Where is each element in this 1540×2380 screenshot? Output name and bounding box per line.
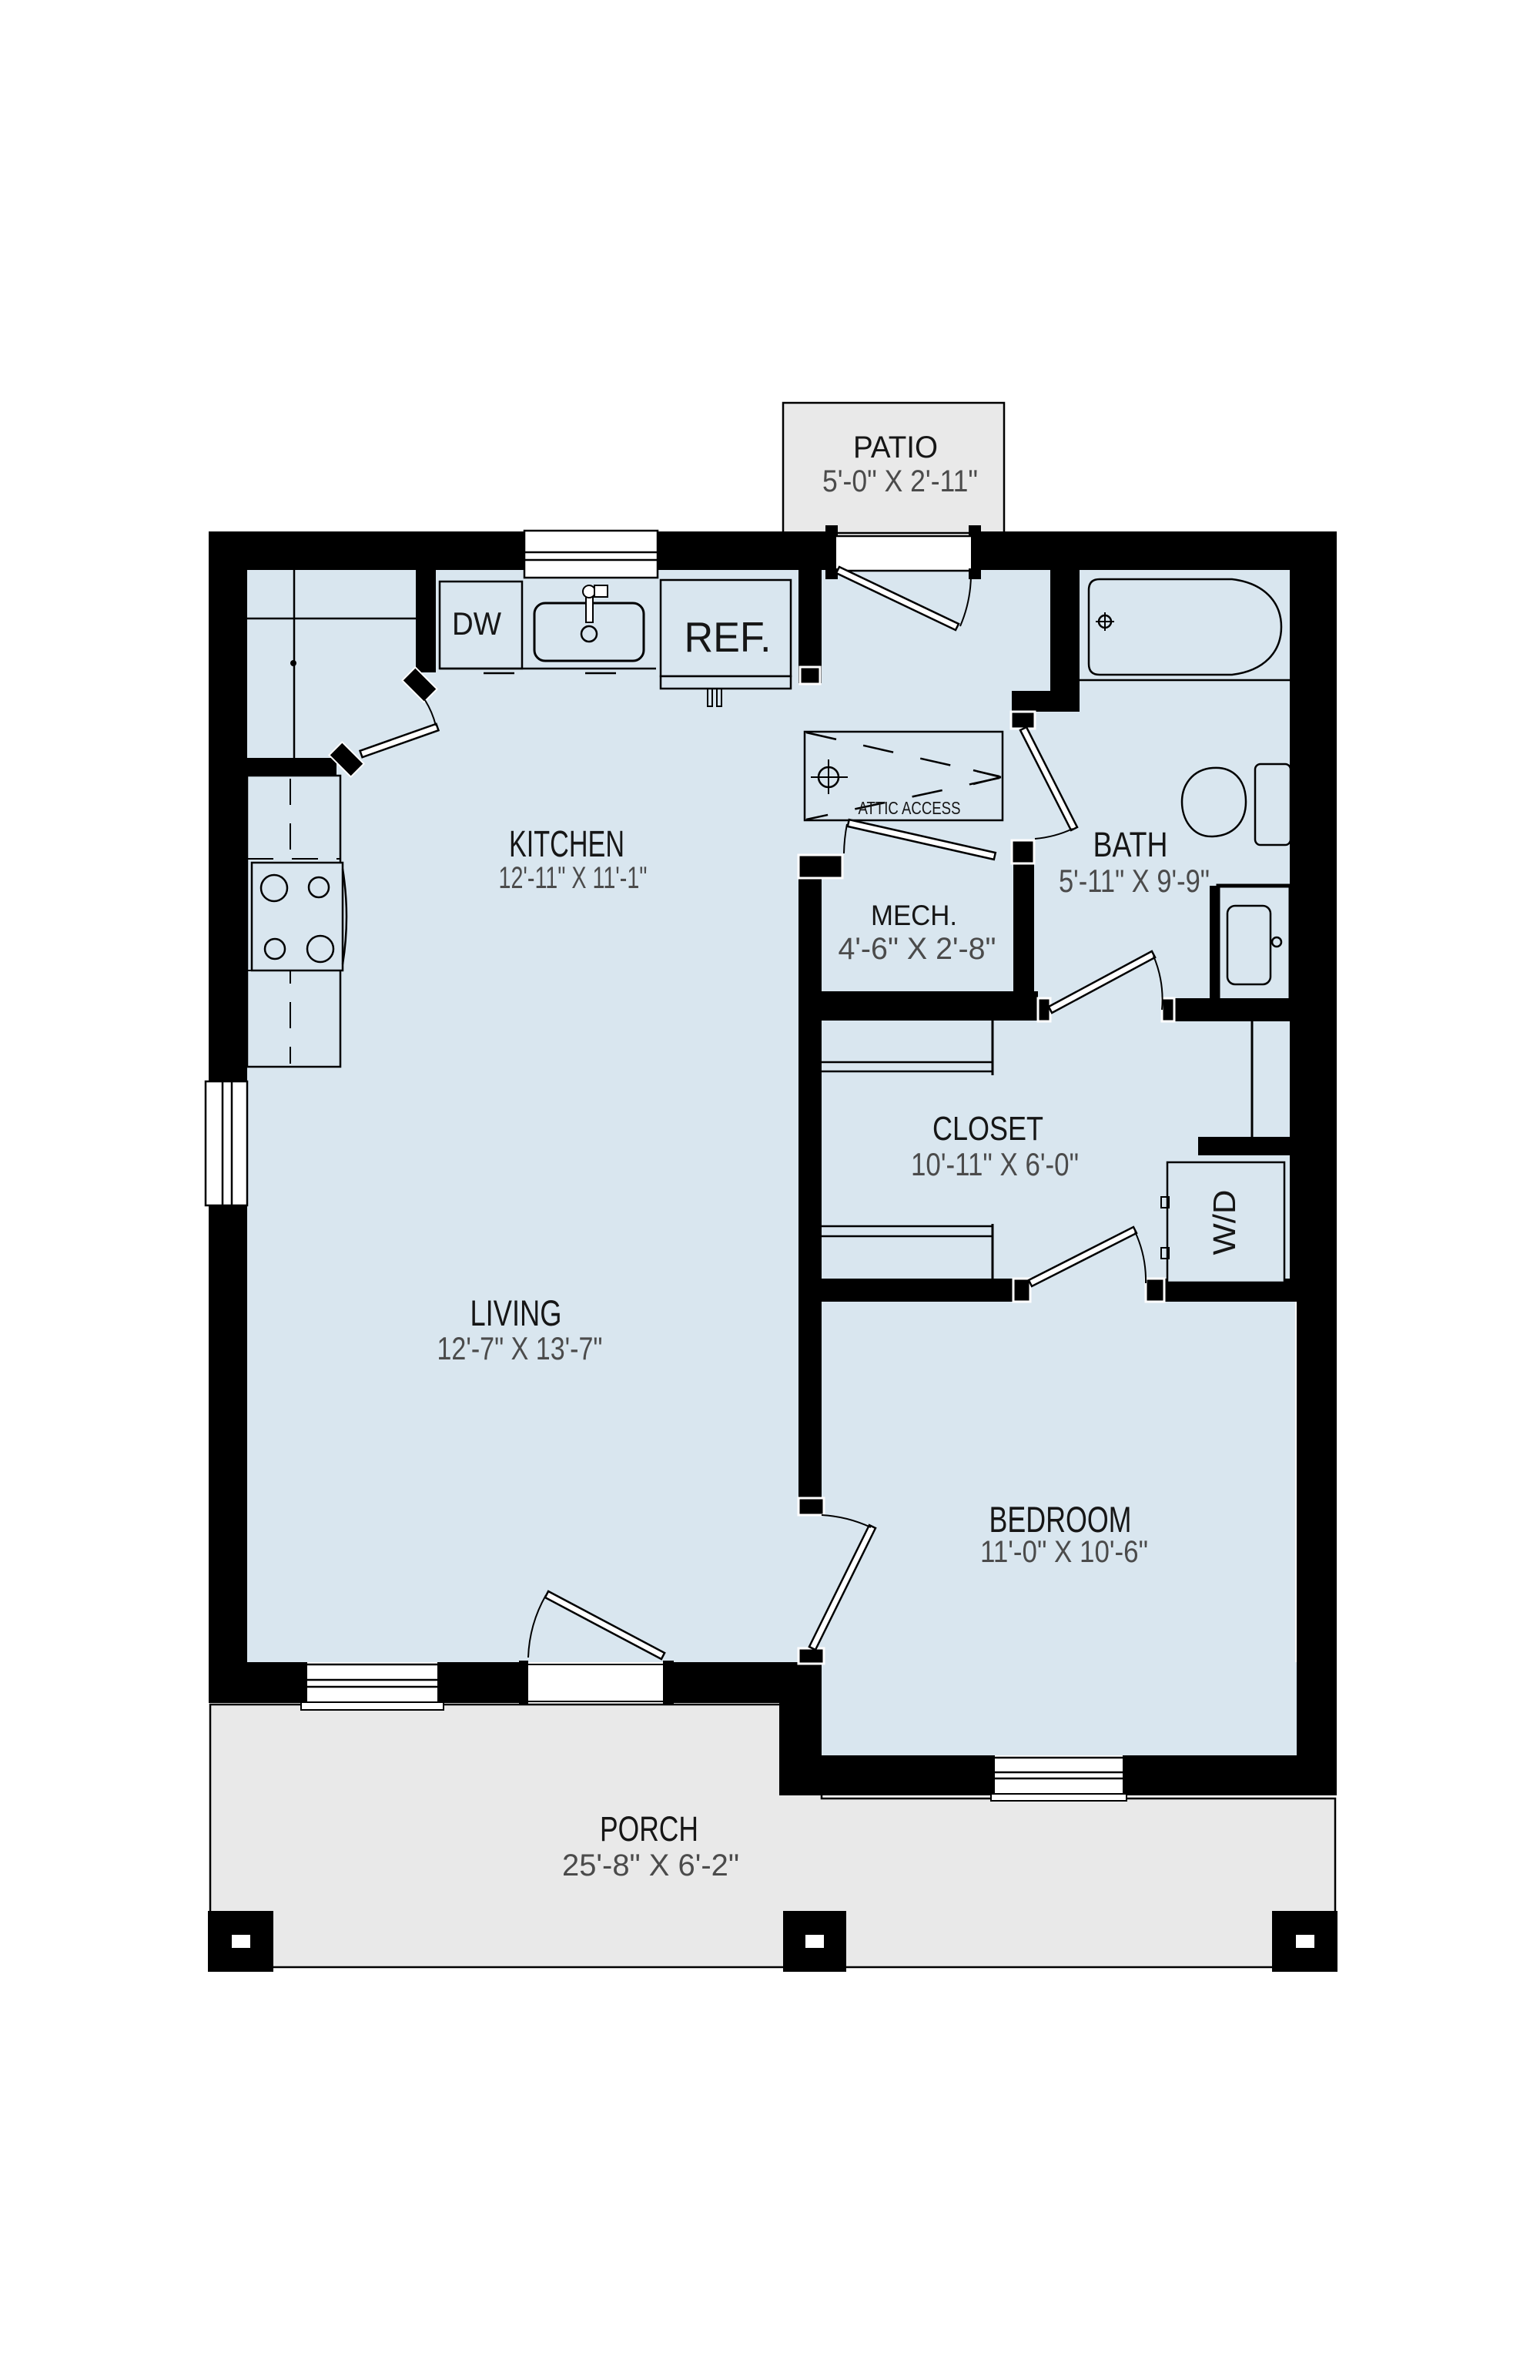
svg-text:PATIO: PATIO — [853, 431, 938, 464]
svg-text:REF.: REF. — [685, 613, 772, 661]
svg-text:W/D: W/D — [1207, 1190, 1242, 1255]
svg-text:4'-6" X 2'-8": 4'-6" X 2'-8" — [839, 932, 996, 966]
svg-text:11'-0" X 10'-6": 11'-0" X 10'-6" — [980, 1535, 1148, 1569]
svg-text:12'-11" X 11'-1": 12'-11" X 11'-1" — [499, 861, 648, 895]
svg-text:KITCHEN: KITCHEN — [509, 824, 624, 865]
svg-text:12'-7" X 13'-7": 12'-7" X 13'-7" — [437, 1330, 603, 1366]
svg-text:PORCH: PORCH — [600, 1809, 698, 1849]
svg-text:5'-0" X 2'-11": 5'-0" X 2'-11" — [822, 464, 978, 498]
svg-text:5'-11" X 9'-9": 5'-11" X 9'-9" — [1059, 863, 1210, 899]
svg-text:ATTIC ACCESS: ATTIC ACCESS — [859, 798, 961, 818]
svg-text:BEDROOM: BEDROOM — [989, 1499, 1132, 1540]
svg-text:DW: DW — [452, 605, 501, 642]
svg-text:10'-11" X 6'-0": 10'-11" X 6'-0" — [911, 1146, 1079, 1182]
svg-text:MECH.: MECH. — [871, 900, 957, 931]
svg-text:25'-8" X 6'-2": 25'-8" X 6'-2" — [562, 1849, 739, 1882]
svg-text:LIVING: LIVING — [470, 1292, 562, 1333]
svg-text:CLOSET: CLOSET — [932, 1110, 1043, 1148]
svg-text:BATH: BATH — [1093, 825, 1168, 864]
